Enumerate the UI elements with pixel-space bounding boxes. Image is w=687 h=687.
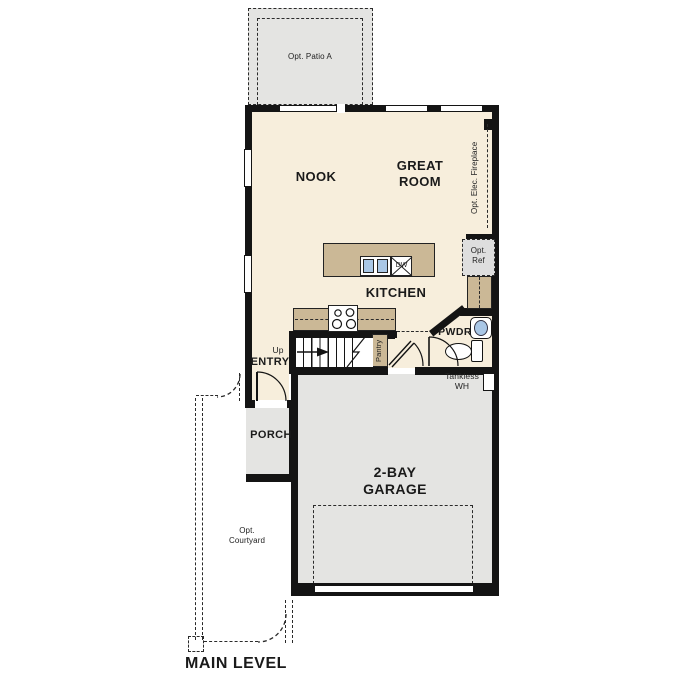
toilet-tank	[471, 340, 483, 362]
wall-garage-top-left	[291, 367, 388, 375]
courtyard-right-post-inner	[292, 600, 293, 643]
garage-label: 2-BAY GARAGE	[350, 464, 440, 498]
opt-fireplace-dash	[487, 124, 488, 228]
toilet-bowl	[445, 343, 472, 360]
wall-garage-left	[291, 368, 298, 596]
courtyard-left-dash-outer	[195, 398, 196, 640]
courtyard-corner-post	[188, 636, 204, 652]
floor-plan: Opt. Patio A Opt. Elec. Fireplace DW	[0, 0, 687, 687]
courtyard-top-dash	[196, 395, 218, 396]
window-left-2	[244, 255, 252, 293]
window-top-3	[440, 105, 483, 112]
wall-porch-bottom	[246, 474, 296, 482]
wall-right	[492, 105, 499, 596]
stairs-up-label: Up	[268, 345, 288, 355]
kitchen-hall-opening-dash	[397, 331, 428, 332]
pantry-label: Pantry	[374, 336, 383, 365]
kitchen-sink-basin-left	[363, 259, 374, 273]
ref-counter-dash	[479, 277, 480, 308]
entry-label: ENTRY	[249, 356, 291, 369]
garage-door	[315, 585, 473, 593]
window-left-1	[244, 149, 252, 187]
courtyard-right-post-outer	[285, 600, 286, 643]
front-door-gap	[255, 400, 287, 408]
porch-label: PORCH	[250, 429, 292, 442]
nook-label: NOOK	[280, 169, 352, 185]
great-room-label: GREAT ROOM	[385, 158, 455, 189]
kitchen-sink-basin-right	[377, 259, 388, 273]
stair-treads	[296, 338, 353, 367]
window-top-2	[385, 105, 428, 112]
opt-ref-label: Opt. Ref	[462, 246, 495, 265]
wall-fireplace-stub	[484, 119, 492, 130]
kitchen-label: KITCHEN	[350, 285, 442, 301]
courtyard-wall-stub-dash	[239, 373, 240, 401]
tankless-wh-label: Tankless WH	[442, 371, 482, 391]
opt-courtyard-label: Opt. Courtyard	[222, 526, 272, 545]
courtyard-bottom-gate-arc	[258, 614, 286, 642]
courtyard-bottom-dash	[204, 641, 258, 642]
dishwasher-label: DW	[393, 262, 410, 270]
opt-patio-label: Opt. Patio A	[270, 52, 350, 62]
pwdr-sink-basin	[474, 320, 488, 336]
opt-fireplace-label: Opt. Elec. Fireplace	[470, 128, 480, 228]
cooktop	[328, 305, 358, 332]
patio-door-gap	[337, 104, 345, 113]
window-top-1	[279, 105, 337, 112]
garage-dashed-bay	[313, 505, 473, 589]
tankless-wh-unit	[483, 373, 495, 391]
pwdr-label: PWDR	[437, 326, 473, 339]
plan-title: MAIN LEVEL	[185, 654, 295, 673]
courtyard-top-gate-arc	[217, 374, 240, 397]
courtyard-left-dash-inner	[202, 398, 203, 640]
